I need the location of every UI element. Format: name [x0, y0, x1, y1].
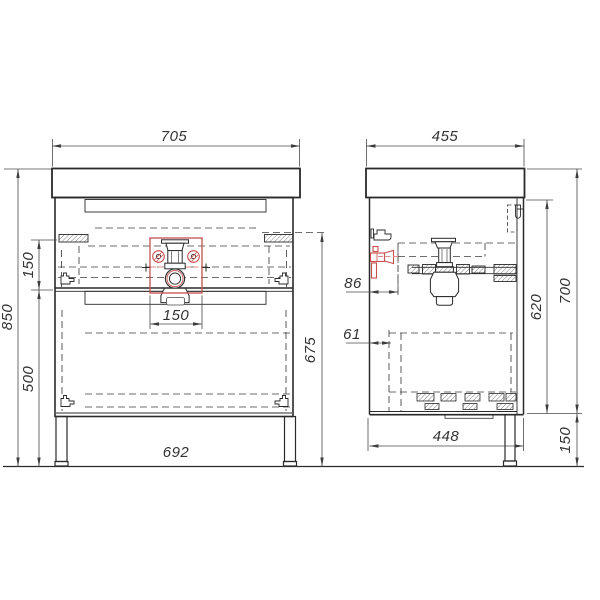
side-trap-body: [430, 272, 458, 296]
front-dim-width: 705: [161, 128, 188, 145]
front-dim-slide-height: 675: [302, 337, 319, 364]
side-dim-body-height: 700: [557, 278, 574, 305]
valve-handle: [385, 251, 394, 264]
side-countertop: [366, 169, 525, 198]
front-drain-cutout: [167, 298, 185, 306]
side-dim-depth: 455: [432, 128, 459, 145]
red-mount-hole-right: [188, 251, 200, 263]
front-countertop: [52, 169, 300, 198]
front-dim-slide-spacing: 150: [20, 252, 37, 279]
front-dim-lower-height: 500: [20, 366, 37, 393]
front-dim-leg-span: 692: [163, 444, 190, 461]
side-hidden-lines: [389, 205, 517, 411]
front-left-leg: [56, 417, 67, 462]
front-dim-total-height: 850: [0, 304, 16, 331]
side-cabinet: [370, 198, 524, 419]
front-right-foot: [284, 462, 297, 467]
front-drawer1-groove: [85, 200, 266, 213]
red-mount-hole-left: [153, 251, 165, 263]
side-dim-front-clearance: 61: [343, 326, 361, 343]
front-hidden-lines: [58, 228, 327, 411]
side-dim-carcass-height: 620: [528, 294, 545, 321]
technical-drawing: 705 455 850 150 500 150 675 692 86 61 62…: [0, 0, 600, 600]
front-siphon: [161, 240, 189, 305]
front-view: [52, 169, 327, 467]
side-leg: [504, 415, 517, 466]
side-mounting-clip: [371, 229, 391, 240]
front-left-foot: [55, 462, 68, 467]
side-dim-leg-height: 150: [557, 427, 574, 454]
side-pipe-couplings: [408, 265, 516, 282]
drawing-page: 705 455 850 150 500 150 675 692 86 61 62…: [0, 0, 600, 600]
side-view: [366, 169, 525, 467]
side-dim-valve-offset: 86: [344, 275, 362, 292]
front-dim-drain-width: 150: [163, 307, 190, 324]
side-wall-hook: [516, 205, 521, 218]
front-right-leg: [285, 417, 296, 462]
side-drawer-slide-rails: [417, 394, 516, 410]
side-red-valve: [371, 247, 400, 279]
side-siphon: [430, 238, 458, 305]
side-dim-bottom-depth: 448: [433, 428, 460, 445]
